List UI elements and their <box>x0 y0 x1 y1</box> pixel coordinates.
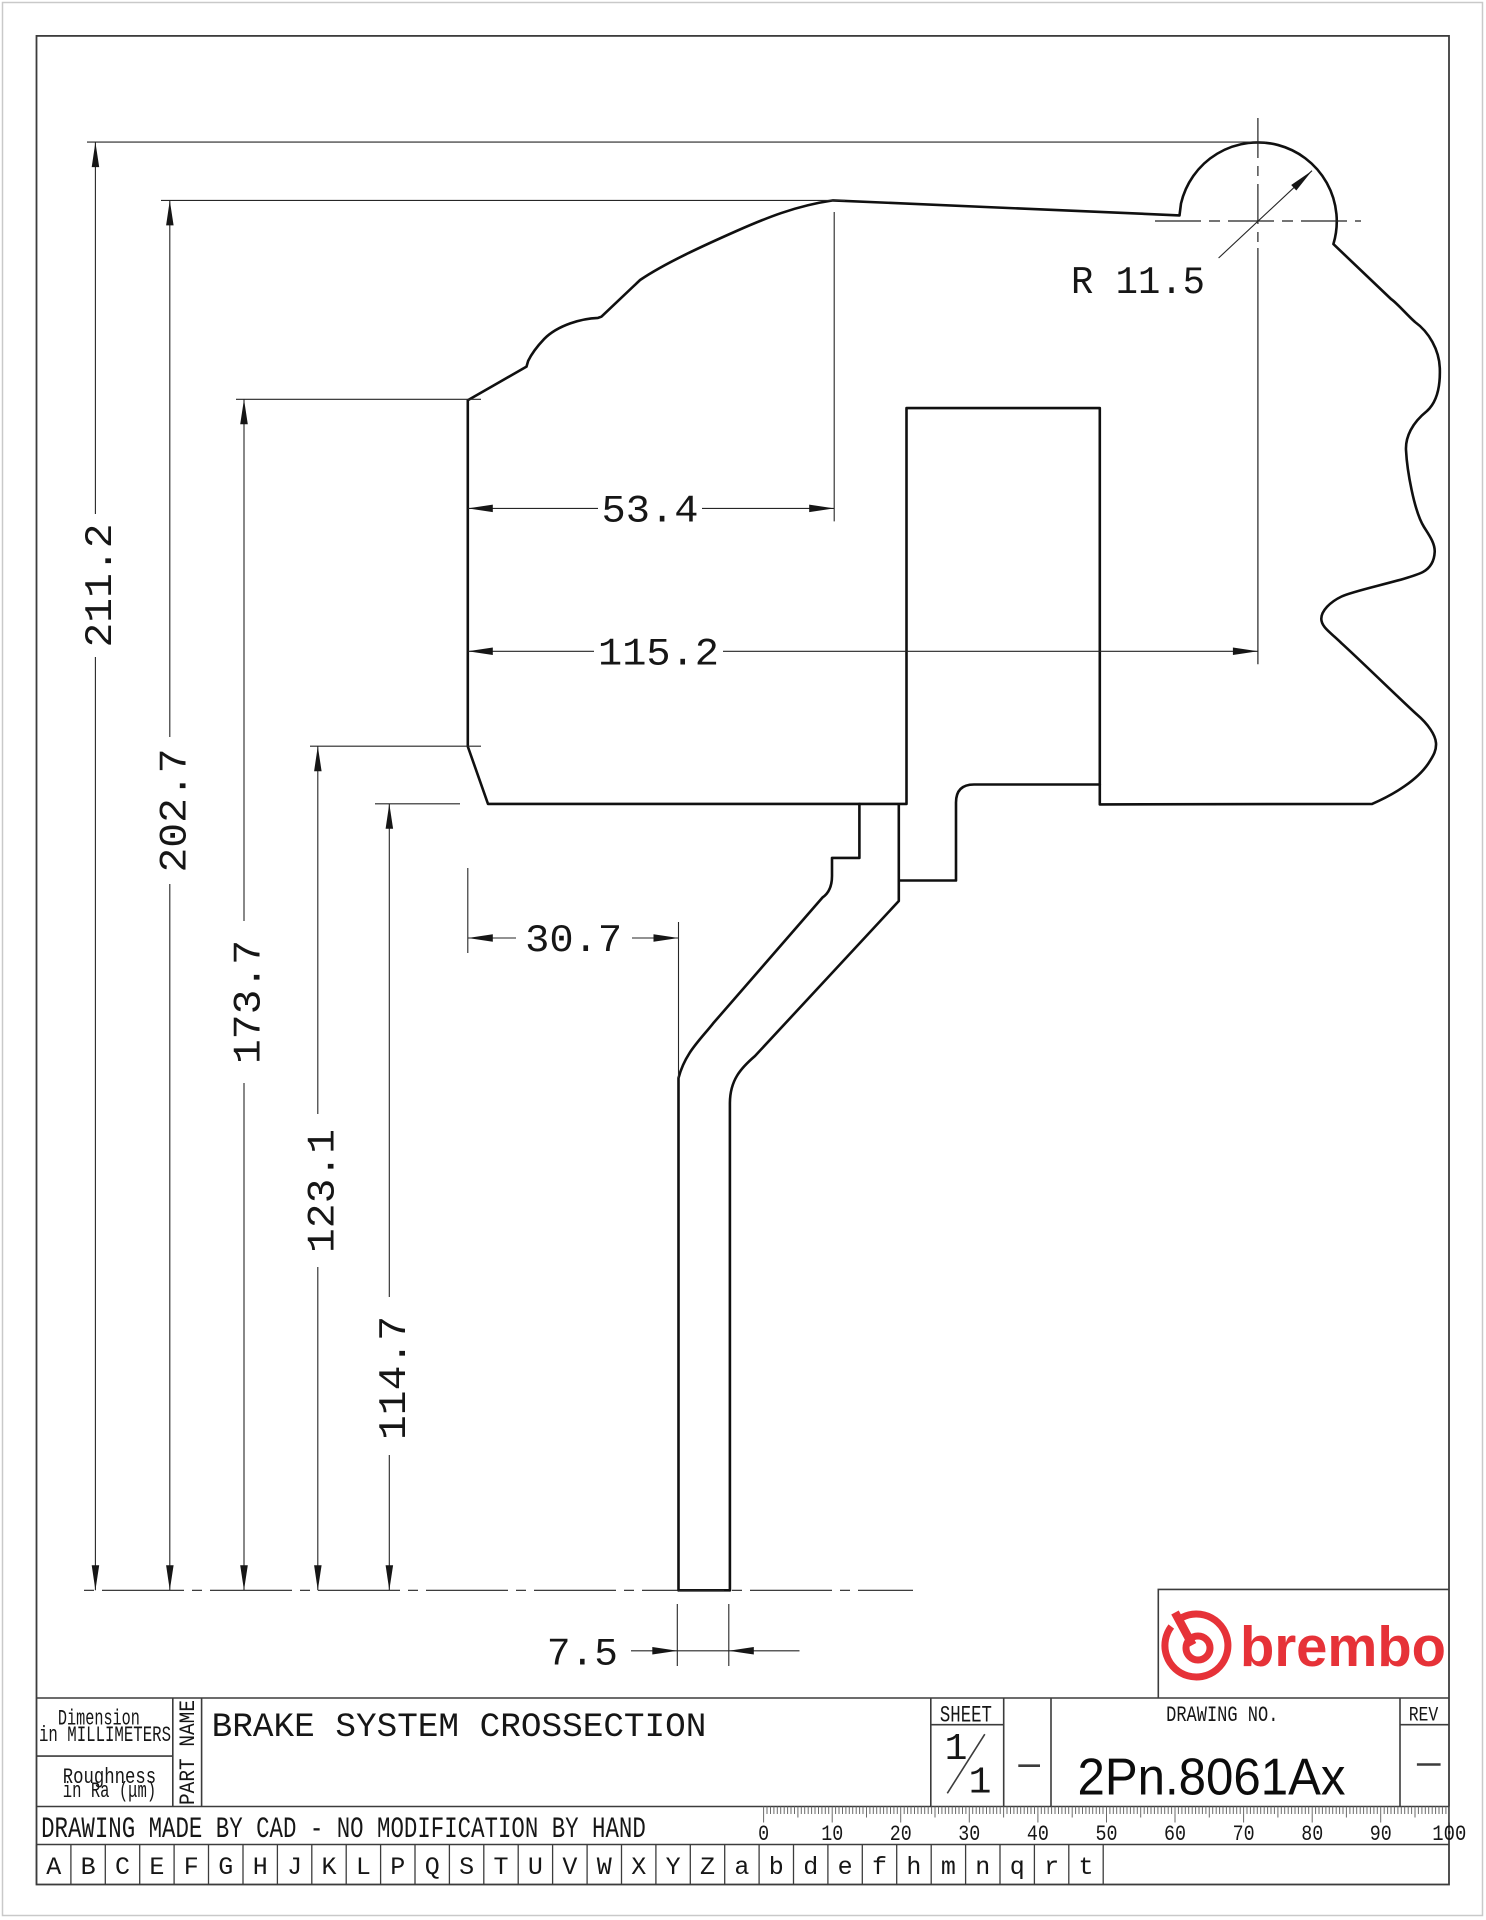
svg-text:100: 100 <box>1432 1822 1466 1847</box>
svg-text:K: K <box>321 1853 336 1882</box>
svg-text:e: e <box>838 1853 853 1882</box>
svg-text:REV: REV <box>1409 1704 1439 1727</box>
svg-text:t: t <box>1078 1853 1093 1882</box>
svg-text:Q: Q <box>425 1853 440 1882</box>
svg-text:7.5: 7.5 <box>547 1633 618 1677</box>
svg-text:30: 30 <box>958 1822 980 1847</box>
svg-text:F: F <box>184 1853 199 1882</box>
svg-text:L: L <box>356 1853 371 1882</box>
svg-text:0: 0 <box>758 1822 769 1847</box>
svg-text:B: B <box>81 1853 96 1882</box>
svg-text:S: S <box>459 1853 474 1882</box>
svg-text:E: E <box>149 1853 164 1882</box>
svg-text:in MILLIMETERS: in MILLIMETERS <box>39 1723 171 1748</box>
svg-text:G: G <box>218 1853 233 1882</box>
svg-text:173.7: 173.7 <box>228 940 272 1064</box>
svg-text:Y: Y <box>666 1853 681 1882</box>
svg-text:1: 1 <box>969 1762 992 1805</box>
svg-text:10: 10 <box>821 1822 843 1847</box>
svg-text:DRAWING MADE BY CAD - NO MODIF: DRAWING MADE BY CAD - NO MODIFICATION BY… <box>41 1813 646 1846</box>
svg-text:Z: Z <box>700 1853 715 1882</box>
svg-text:A: A <box>46 1853 61 1882</box>
svg-text:H: H <box>253 1853 268 1882</box>
svg-text:202.7: 202.7 <box>153 749 197 873</box>
svg-text:40: 40 <box>1027 1822 1049 1847</box>
svg-text:U: U <box>528 1853 543 1882</box>
svg-text:in Ra (μm): in Ra (μm) <box>63 1779 156 1804</box>
svg-text:V: V <box>562 1853 577 1882</box>
svg-text:80: 80 <box>1301 1822 1323 1847</box>
svg-text:211.2: 211.2 <box>79 524 123 648</box>
svg-text:X: X <box>631 1853 646 1882</box>
svg-text:a: a <box>734 1853 749 1882</box>
svg-text:2Pn.8061Ax: 2Pn.8061Ax <box>1078 1749 1346 1807</box>
svg-text:n: n <box>975 1853 990 1882</box>
svg-text:114.7: 114.7 <box>373 1316 417 1440</box>
svg-text:PART NAME: PART NAME <box>176 1700 201 1805</box>
svg-text:1: 1 <box>945 1728 968 1771</box>
svg-text:DRAWING NO.: DRAWING NO. <box>1166 1703 1278 1728</box>
svg-text:J: J <box>287 1853 302 1882</box>
svg-text:60: 60 <box>1164 1822 1186 1847</box>
svg-text:f: f <box>872 1853 887 1882</box>
svg-text:h: h <box>906 1853 921 1882</box>
svg-text:123.1: 123.1 <box>301 1129 345 1253</box>
svg-text:q: q <box>1010 1853 1025 1882</box>
svg-text:W: W <box>597 1853 612 1882</box>
svg-text:90: 90 <box>1370 1822 1392 1847</box>
svg-text:r: r <box>1044 1853 1059 1882</box>
svg-text:53.4: 53.4 <box>602 489 699 533</box>
svg-text:C: C <box>115 1853 130 1882</box>
svg-text:30.7: 30.7 <box>525 919 622 963</box>
svg-text:115.2: 115.2 <box>598 632 719 676</box>
svg-text:70: 70 <box>1233 1822 1255 1847</box>
svg-text:BRAKE SYSTEM CROSSECTION: BRAKE SYSTEM CROSSECTION <box>212 1708 707 1747</box>
svg-text:P: P <box>390 1853 405 1882</box>
svg-text:d: d <box>803 1853 818 1882</box>
svg-text:b: b <box>769 1853 784 1882</box>
svg-text:T: T <box>493 1853 508 1882</box>
svg-text:SHEET: SHEET <box>940 1703 992 1729</box>
svg-text:R 11.5: R 11.5 <box>1071 261 1205 305</box>
svg-text:20: 20 <box>890 1822 912 1847</box>
svg-text:50: 50 <box>1096 1822 1118 1847</box>
svg-text:m: m <box>941 1853 956 1882</box>
svg-text:brembo: brembo <box>1240 1615 1446 1679</box>
